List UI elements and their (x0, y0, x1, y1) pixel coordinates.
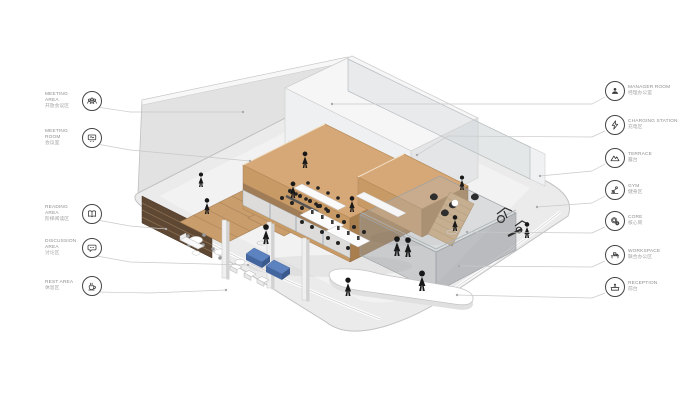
legend-item-charging-station: CHARGING STATION 充电区 (605, 115, 690, 135)
workspace-icon (605, 245, 625, 265)
gym-label-zh: 健身区 (628, 190, 690, 196)
meeting-room-icon (82, 128, 102, 148)
core-icon (605, 211, 625, 231)
charging-station-label-zh: 充电区 (628, 125, 690, 131)
diagram-page: MEETING AREA 开放会议区 MEETING ROOM 会议室 READ… (0, 0, 700, 401)
charging-station-icon (605, 115, 625, 135)
reception-label-zh: 前台 (628, 287, 690, 293)
reading-area-label-zh: 阶梯阅读区 (45, 217, 79, 223)
discussion-area-label-en: DISCUSSION AREA (45, 239, 79, 251)
reading-area-label-en: READING AREA (45, 205, 79, 217)
legend-item-core: CORE 核心筒 (605, 211, 690, 231)
legend-item-discussion-area: DISCUSSION AREA 讨论区 (45, 238, 102, 258)
workspace-label-zh: 联合办公区 (628, 255, 690, 261)
manager-room-label-zh: 经理办公室 (628, 91, 690, 97)
legend-item-terrace: TERRACE 露台 (605, 148, 690, 168)
rest-area-label-zh: 休息区 (45, 286, 79, 292)
meeting-area-icon (82, 91, 102, 111)
core-label-zh: 核心筒 (628, 221, 690, 227)
legend-item-manager-room: MANAGER ROOM 经理办公室 (605, 81, 690, 101)
legend-item-gym: GYM 健身区 (605, 180, 690, 200)
legend-item-meeting-room: MEETING ROOM 会议室 (45, 128, 102, 148)
legend-item-meeting-area: MEETING AREA 开放会议区 (45, 91, 102, 111)
manager-room-icon (605, 81, 625, 101)
rest-area-icon (82, 276, 102, 296)
meeting-room-label-en: MEETING ROOM (45, 129, 79, 141)
meeting-area-label-zh: 开放会议区 (45, 104, 79, 110)
meeting-room-label-zh: 会议室 (45, 141, 79, 147)
legend-item-reception: RECEPTION 前台 (605, 277, 690, 297)
discussion-area-label-zh: 讨论区 (45, 251, 79, 257)
terrace-label-zh: 露台 (628, 158, 690, 164)
gym-icon (605, 180, 625, 200)
meeting-area-label-en: MEETING AREA (45, 92, 79, 104)
discussion-area-icon (82, 238, 102, 258)
legend-item-rest-area: REST AREA 休息区 (45, 276, 102, 296)
reception-icon (605, 277, 625, 297)
axonometric-illustration (0, 0, 700, 401)
terrace-icon (605, 148, 625, 168)
legend-item-reading-area: READING AREA 阶梯阅读区 (45, 204, 102, 224)
legend-item-workspace: WORKSPACE 联合办公区 (605, 245, 690, 265)
reading-area-icon (82, 204, 102, 224)
